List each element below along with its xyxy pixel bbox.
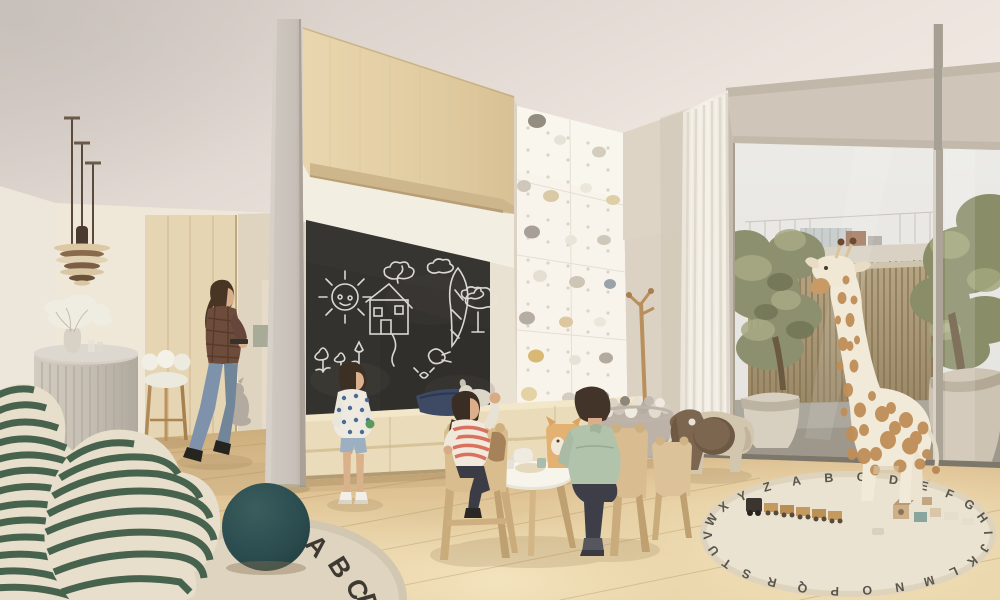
- svg-text:B: B: [824, 471, 834, 485]
- svg-text:P: P: [830, 584, 839, 598]
- svg-text:V: V: [701, 530, 715, 540]
- svg-text:I: I: [981, 531, 995, 535]
- svg-text:O: O: [862, 583, 873, 598]
- svg-text:D: D: [888, 472, 899, 487]
